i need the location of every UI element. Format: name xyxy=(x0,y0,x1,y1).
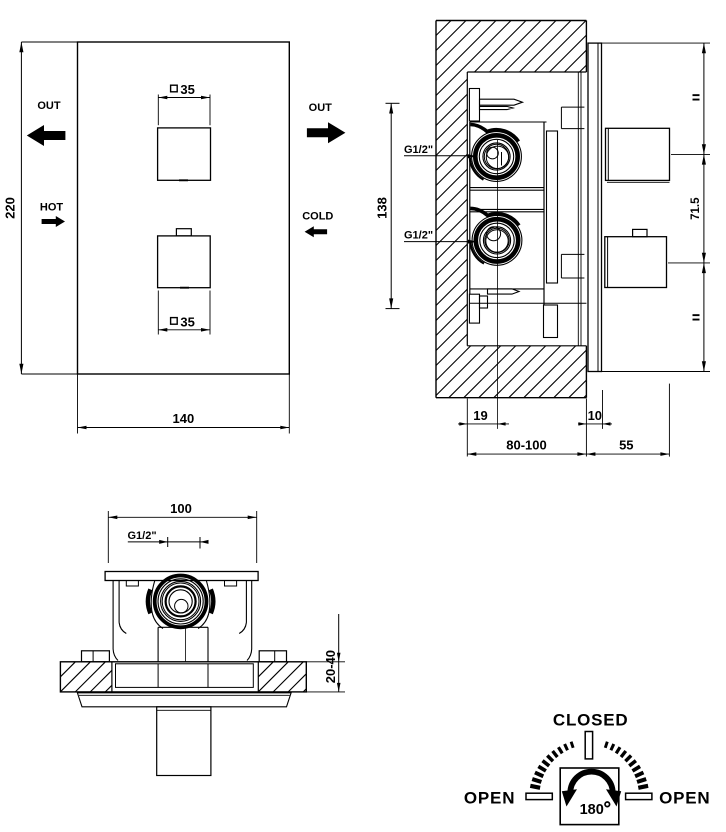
svg-text:35: 35 xyxy=(180,82,194,97)
svg-text:G1/2": G1/2" xyxy=(404,229,433,241)
svg-text:138: 138 xyxy=(375,197,390,219)
svg-text:55: 55 xyxy=(619,438,633,453)
svg-text:80-100: 80-100 xyxy=(506,438,546,453)
svg-text:OPEN: OPEN xyxy=(659,789,710,808)
svg-text:CLOSED: CLOSED xyxy=(553,711,629,730)
svg-text:140: 140 xyxy=(173,411,195,426)
svg-text:COLD: COLD xyxy=(302,211,333,223)
svg-text:100: 100 xyxy=(170,501,192,516)
svg-text:180: 180 xyxy=(580,802,604,818)
svg-text:71.5: 71.5 xyxy=(690,197,702,220)
svg-text:220: 220 xyxy=(3,197,18,219)
svg-text:35: 35 xyxy=(180,315,194,330)
svg-text:10: 10 xyxy=(588,408,602,423)
svg-text:OPEN: OPEN xyxy=(464,789,515,808)
svg-text:20-40: 20-40 xyxy=(323,650,338,683)
svg-text:G1/2": G1/2" xyxy=(128,530,157,542)
svg-text:19: 19 xyxy=(473,408,487,423)
svg-text:G1/2": G1/2" xyxy=(404,144,433,156)
svg-text:HOT: HOT xyxy=(40,202,64,214)
svg-text:OUT: OUT xyxy=(309,102,333,114)
svg-text:OUT: OUT xyxy=(37,100,61,112)
